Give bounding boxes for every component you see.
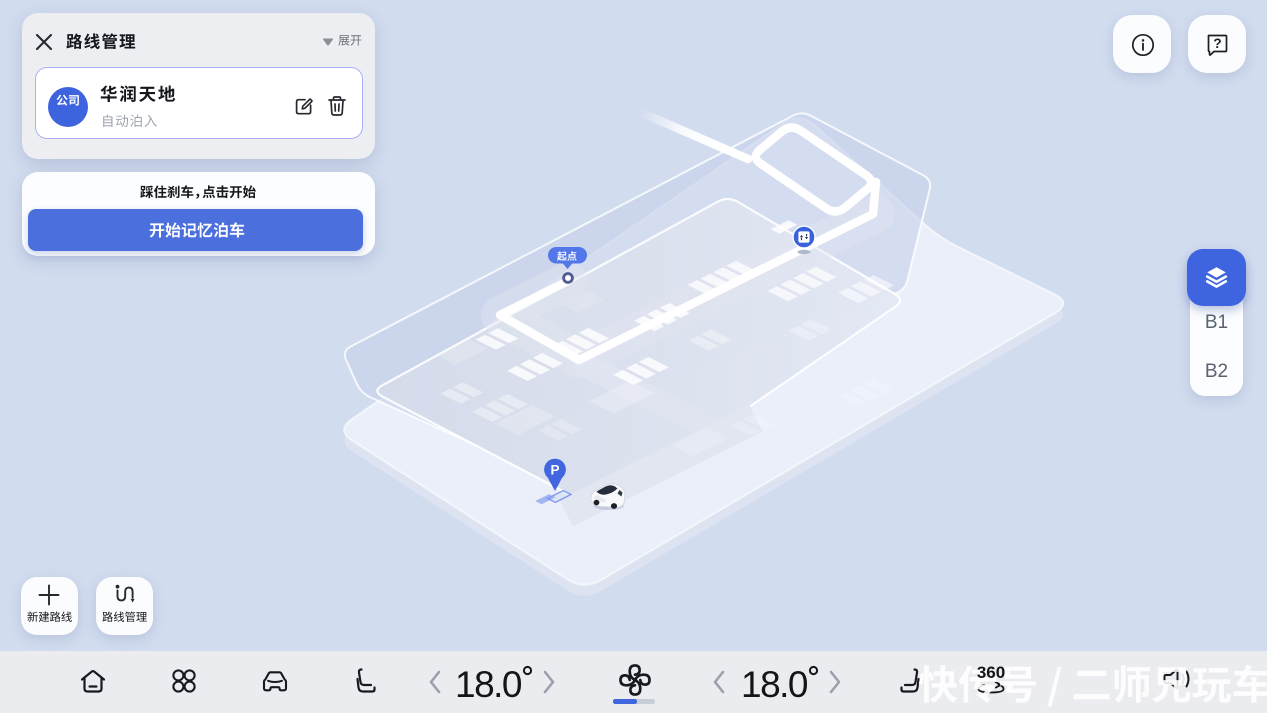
svg-text:P: P [550,462,559,477]
svg-text:?: ? [1213,36,1221,51]
